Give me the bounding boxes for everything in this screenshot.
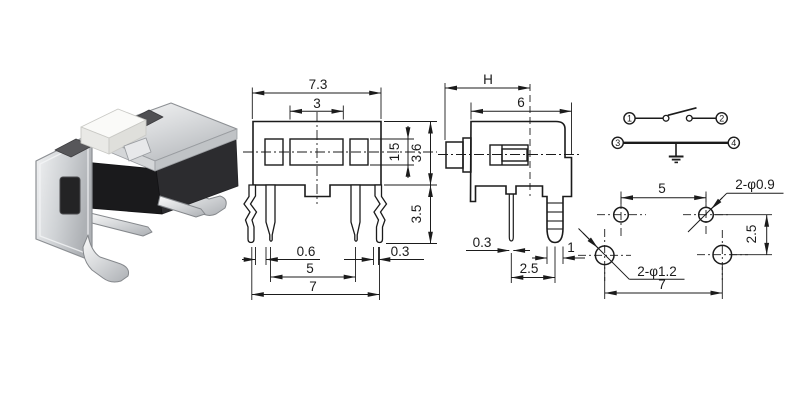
- switch-leg-thin-front: [84, 212, 152, 236]
- front-dim-leg-length: 3.5: [409, 205, 424, 224]
- side-dim-leg-width: 1: [567, 240, 575, 255]
- front-leg-inner-right: [351, 185, 360, 241]
- switch-bracket-slot: [60, 177, 80, 214]
- technical-drawing-canvas: 7.3 3 1.5 3.6 3.5 0.6 5 7 0.3: [0, 0, 800, 402]
- side-view-dimension-lines: [445, 88, 585, 278]
- side-view-centerlines: [438, 84, 580, 196]
- front-dim-inner-height: 1.5: [387, 143, 402, 162]
- side-detail-inner: [502, 149, 527, 161]
- ground-symbol: [669, 143, 684, 163]
- front-dim-outer-pitch: 7: [309, 279, 317, 294]
- front-view: 7.3 3 1.5 3.6 3.5 0.6 5 7 0.3: [242, 77, 437, 300]
- pcb-layout: 5 2-φ0.9 2.5 2-φ1.2 7: [578, 177, 784, 299]
- switch-contact-left: [663, 115, 669, 121]
- front-dim-leg-offset: 0.6: [297, 244, 316, 259]
- side-view-dimension-labels: H 6 0.3 2.5 1: [473, 72, 575, 276]
- circuit-diagram: 1 2 3 4: [612, 108, 739, 163]
- switch-contact-right: [686, 115, 692, 121]
- pcb-label-large-holes: 2-φ1.2: [637, 264, 677, 279]
- pcb-extension-lines: [605, 192, 772, 300]
- front-dim-button-width: 3: [313, 96, 321, 111]
- switch-claw-front: [83, 235, 129, 282]
- switch-body-front-face: [84, 162, 162, 214]
- side-dim-depth: 6: [517, 95, 525, 110]
- front-legs: [244, 185, 387, 243]
- pcb-dim-row-pitch: 2.5: [744, 225, 759, 244]
- front-leg-outer-right: [374, 185, 387, 243]
- terminal-1-label: 1: [627, 114, 632, 124]
- side-dim-pin-offset: 2.5: [520, 261, 539, 276]
- side-button-flange: [463, 138, 471, 172]
- side-detail-outer: [490, 145, 528, 165]
- product-photo-3d: [36, 103, 238, 282]
- side-view-extension-lines: [445, 83, 572, 283]
- front-dim-inner-pitch: 5: [306, 261, 314, 276]
- side-view: H 6 0.3 2.5 1: [438, 72, 585, 283]
- side-body-outline: [471, 122, 572, 243]
- side-dim-pin-thickness: 0.3: [473, 235, 492, 250]
- side-pin: [509, 194, 513, 241]
- front-dim-total-width: 7.3: [309, 77, 328, 92]
- front-dim-body-height: 3.6: [409, 144, 424, 163]
- terminal-3-label: 3: [615, 138, 620, 148]
- front-leg-outer-left: [244, 185, 257, 243]
- pcb-dim-bottom-pitch: 7: [658, 277, 666, 292]
- pcb-label-small-holes: 2-φ0.9: [735, 177, 775, 192]
- switch-lever: [668, 108, 697, 116]
- front-dim-leg-thickness: 0.3: [391, 244, 410, 259]
- terminal-2-label: 2: [719, 114, 724, 124]
- front-view-extension-lines: [252, 88, 437, 301]
- front-leg-inner-left: [266, 185, 275, 241]
- pcb-dim-top-pitch: 5: [658, 181, 666, 196]
- terminal-4-label: 4: [731, 138, 736, 148]
- drawing-page: 7.3 3 1.5 3.6 3.5 0.6 5 7 0.3: [0, 0, 800, 402]
- side-button: [446, 142, 463, 168]
- side-leg-hatch: [547, 203, 563, 229]
- side-dim-height: H: [483, 72, 493, 87]
